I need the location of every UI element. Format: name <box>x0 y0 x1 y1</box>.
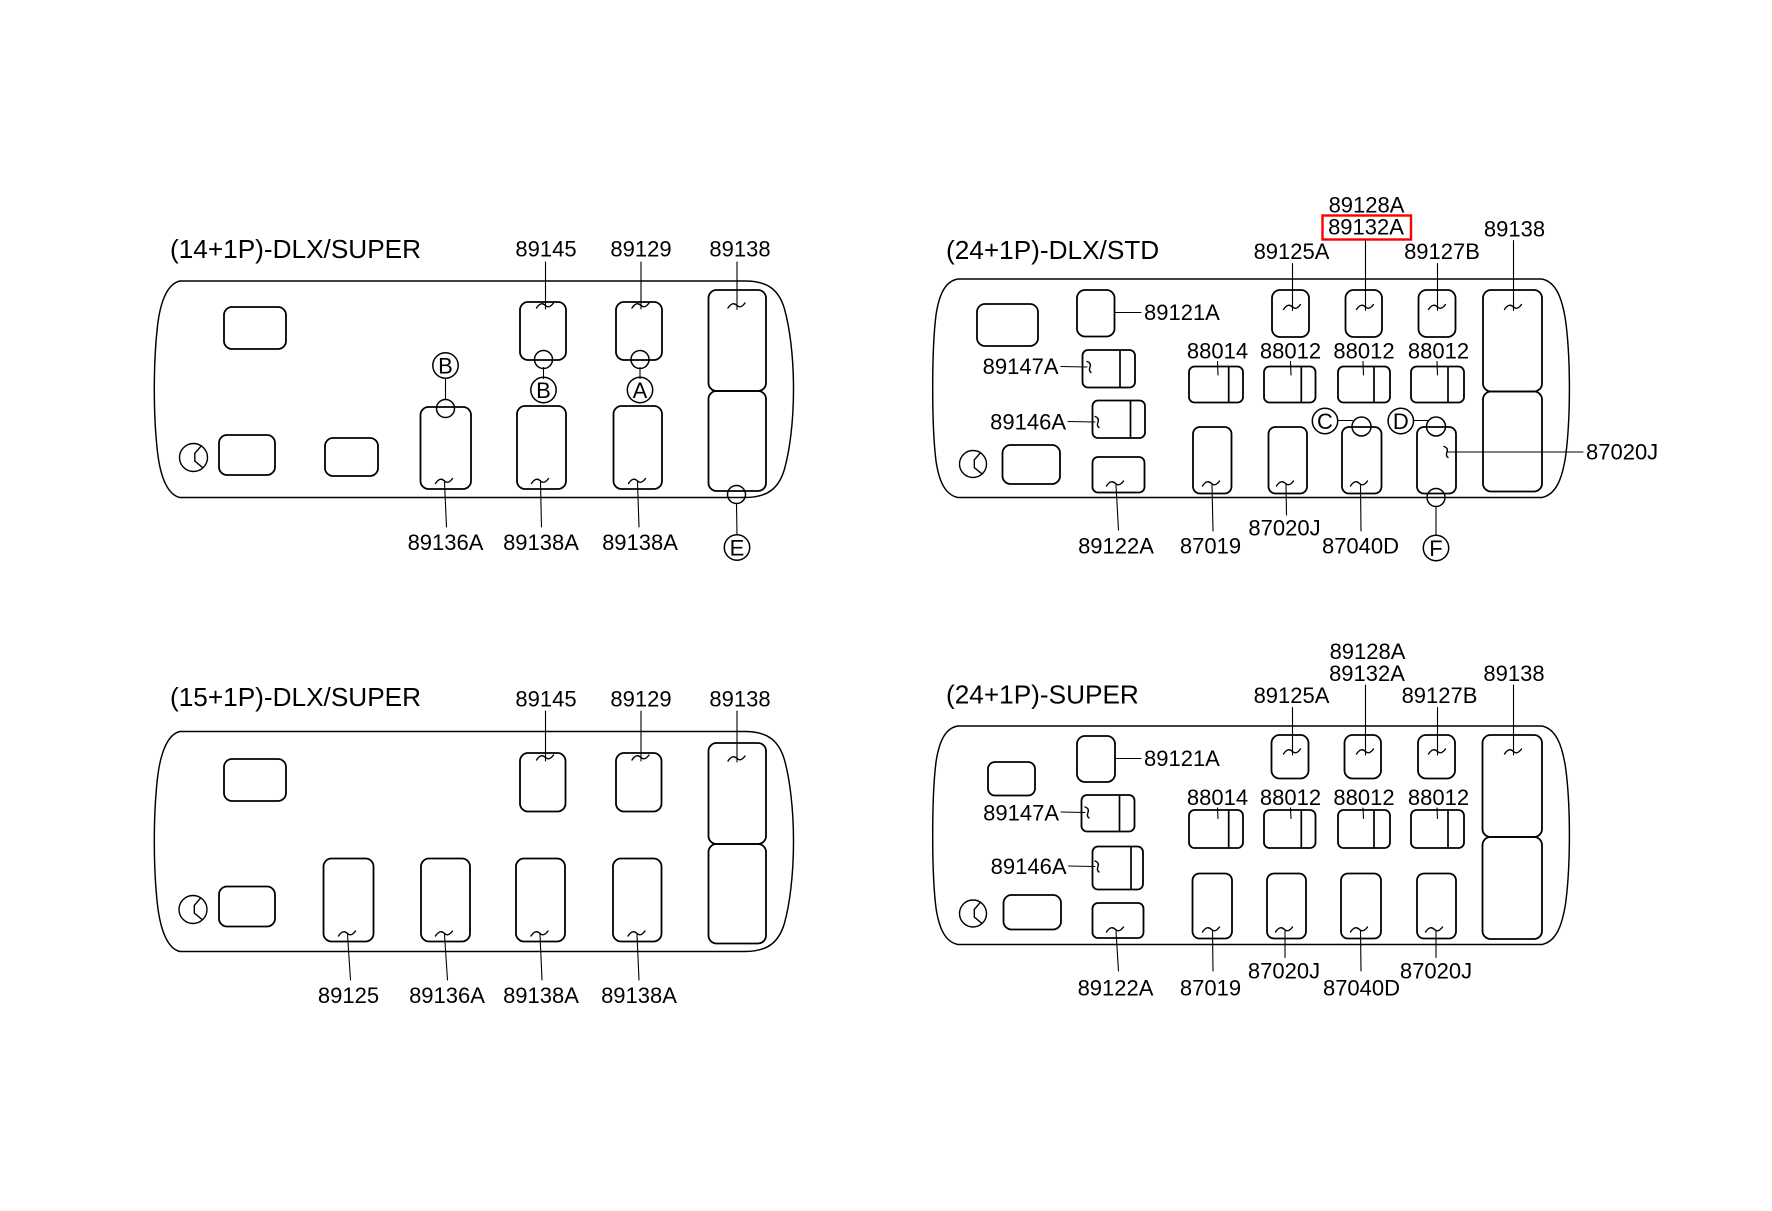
svg-text:89145: 89145 <box>515 687 576 712</box>
svg-text:89146A: 89146A <box>990 410 1066 435</box>
svg-text:(15+1P)-DLX/SUPER: (15+1P)-DLX/SUPER <box>170 682 421 712</box>
svg-text:89138A: 89138A <box>601 983 677 1008</box>
svg-text:89138A: 89138A <box>503 983 579 1008</box>
svg-text:89147A: 89147A <box>983 801 1059 826</box>
svg-text:C: C <box>1317 409 1333 434</box>
svg-text:89121A: 89121A <box>1144 746 1220 771</box>
svg-text:89138: 89138 <box>709 687 770 712</box>
svg-text:89138: 89138 <box>709 237 770 262</box>
svg-text:88014: 88014 <box>1187 785 1248 810</box>
svg-text:89138A: 89138A <box>503 530 579 555</box>
svg-text:88012: 88012 <box>1333 339 1394 364</box>
svg-text:88012: 88012 <box>1408 785 1469 810</box>
svg-text:87020J: 87020J <box>1586 440 1658 465</box>
svg-text:88012: 88012 <box>1333 785 1394 810</box>
svg-text:89138A: 89138A <box>602 530 678 555</box>
svg-text:(24+1P)-SUPER: (24+1P)-SUPER <box>946 680 1139 710</box>
svg-text:D: D <box>1393 409 1409 434</box>
svg-text:B: B <box>438 353 453 378</box>
svg-text:B: B <box>536 378 551 403</box>
svg-text:89127B: 89127B <box>1404 239 1480 264</box>
svg-text:89129: 89129 <box>610 687 671 712</box>
svg-text:89122A: 89122A <box>1078 534 1154 559</box>
svg-text:87020J: 87020J <box>1248 959 1320 984</box>
svg-text:89132A: 89132A <box>1328 215 1404 240</box>
svg-text:87020J: 87020J <box>1248 516 1320 541</box>
svg-text:89129: 89129 <box>610 237 671 262</box>
svg-text:87019: 87019 <box>1180 976 1241 1001</box>
svg-text:89136A: 89136A <box>408 530 484 555</box>
svg-text:89127B: 89127B <box>1402 683 1478 708</box>
svg-text:87020J: 87020J <box>1400 959 1472 984</box>
svg-text:E: E <box>730 535 745 560</box>
svg-text:88012: 88012 <box>1260 339 1321 364</box>
svg-text:88012: 88012 <box>1408 339 1469 364</box>
svg-text:87040D: 87040D <box>1322 534 1399 559</box>
svg-text:89138: 89138 <box>1484 217 1545 242</box>
svg-text:F: F <box>1429 536 1442 561</box>
svg-text:88014: 88014 <box>1187 339 1248 364</box>
svg-text:A: A <box>633 378 648 403</box>
svg-text:89125: 89125 <box>318 983 379 1008</box>
svg-text:89138: 89138 <box>1483 661 1544 686</box>
svg-text:89145: 89145 <box>515 237 576 262</box>
svg-text:89122A: 89122A <box>1078 976 1154 1001</box>
svg-text:89121A: 89121A <box>1144 300 1220 325</box>
svg-text:89125A: 89125A <box>1254 683 1330 708</box>
svg-text:87040D: 87040D <box>1323 976 1400 1001</box>
svg-text:89132A: 89132A <box>1329 661 1405 686</box>
svg-text:88012: 88012 <box>1260 785 1321 810</box>
svg-text:89125A: 89125A <box>1254 239 1330 264</box>
svg-text:87019: 87019 <box>1180 534 1241 559</box>
svg-text:(24+1P)-DLX/STD: (24+1P)-DLX/STD <box>946 235 1159 265</box>
svg-text:89147A: 89147A <box>983 354 1059 379</box>
svg-text:(14+1P)-DLX/SUPER: (14+1P)-DLX/SUPER <box>170 234 421 264</box>
svg-text:89146A: 89146A <box>991 854 1067 879</box>
svg-text:89136A: 89136A <box>409 983 485 1008</box>
